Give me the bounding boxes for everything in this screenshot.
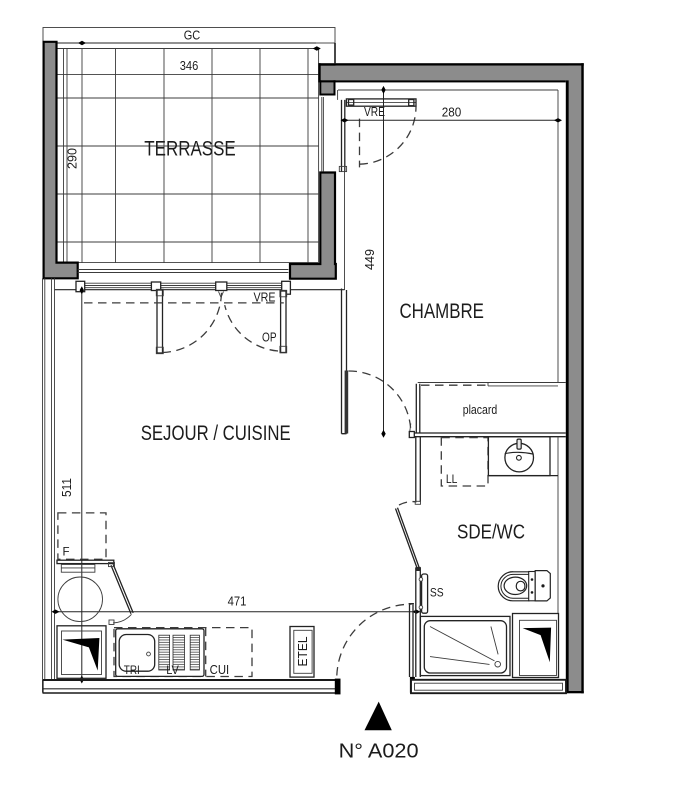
svg-text:LL: LL	[446, 474, 458, 486]
svg-text:OP: OP	[262, 331, 277, 345]
svg-text:ETEL: ETEL	[296, 636, 310, 666]
svg-text:280: 280	[442, 106, 462, 120]
svg-text:CUI: CUI	[210, 663, 230, 677]
svg-text:SS: SS	[430, 588, 444, 600]
svg-text:TERRASSE: TERRASSE	[144, 137, 236, 160]
svg-text:SDE/WC: SDE/WC	[457, 522, 525, 544]
svg-text:290: 290	[66, 148, 80, 169]
svg-text:N° A020: N° A020	[339, 740, 419, 763]
svg-text:346: 346	[180, 59, 199, 73]
svg-text:449: 449	[363, 249, 377, 270]
svg-text:SEJOUR / CUISINE: SEJOUR / CUISINE	[141, 422, 291, 445]
svg-text:placard: placard	[463, 403, 498, 417]
svg-text:VRE: VRE	[364, 105, 385, 119]
svg-text:GC: GC	[184, 29, 201, 43]
svg-text:VRE: VRE	[254, 291, 276, 305]
svg-text:CHAMBRE: CHAMBRE	[399, 300, 484, 323]
svg-text:LV: LV	[166, 665, 179, 677]
svg-text:471: 471	[228, 595, 247, 609]
svg-text:TRI: TRI	[124, 665, 140, 677]
svg-text:511: 511	[60, 478, 74, 497]
svg-text:F: F	[62, 547, 69, 559]
